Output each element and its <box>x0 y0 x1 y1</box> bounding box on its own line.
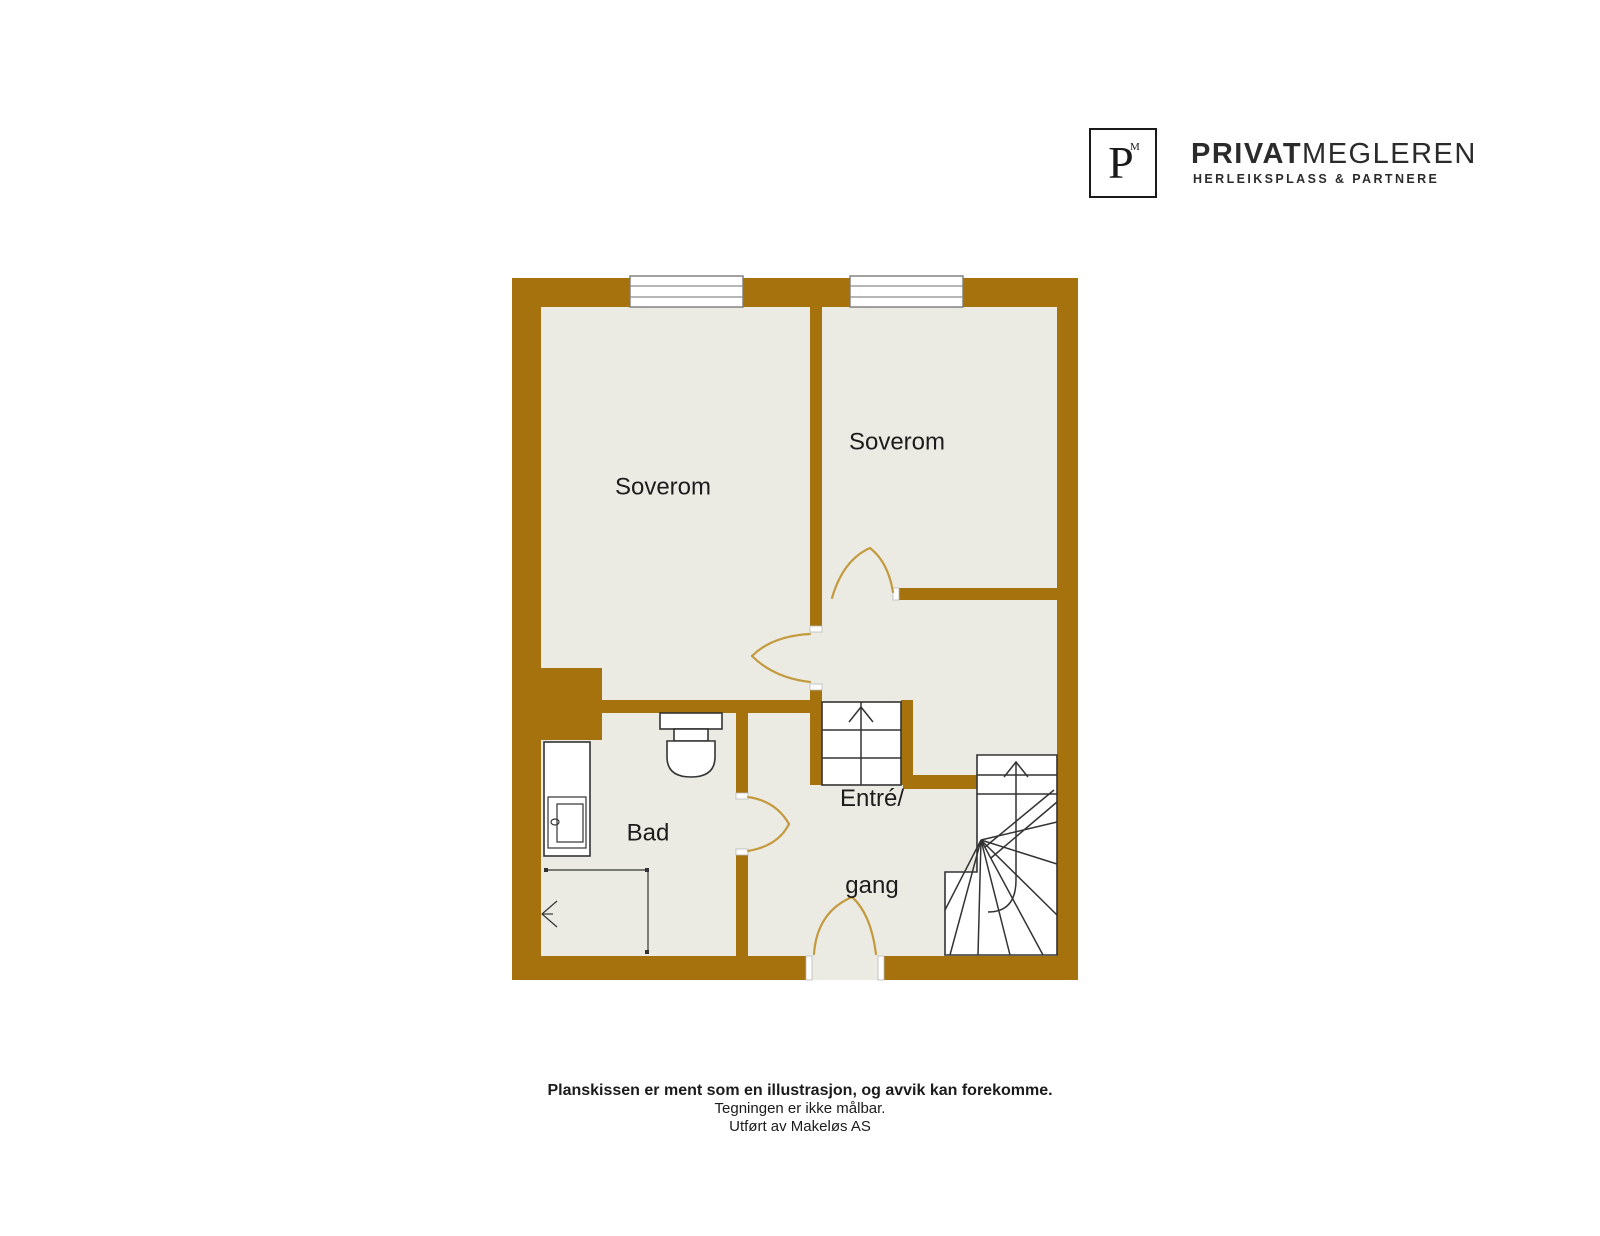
footer-line-1: Planskissen er ment som en illustrasjon,… <box>0 1081 1600 1100</box>
brand-name: PRIVATMEGLEREN <box>1191 139 1477 169</box>
room-label-entre-line1: Entré/ <box>840 784 904 813</box>
room-label-soverom-2: Soverom <box>849 428 945 457</box>
brand-subtitle: HERLEIKSPLASS & PARTNERE <box>1193 172 1439 186</box>
wall-bad-top <box>602 700 810 713</box>
entrance-opening <box>806 956 884 980</box>
brand-name-bold: PRIVAT <box>1191 138 1302 170</box>
toilet-icon <box>660 713 722 777</box>
footer-disclaimer: Planskissen er ment som en illustrasjon,… <box>0 1081 1600 1136</box>
page: Soverom Soverom Bad Entré/ gang P M PRIV… <box>0 0 1600 1236</box>
wall-soverom2-bottom <box>893 588 1057 600</box>
logo-monogram-sup: M <box>1130 141 1140 153</box>
privatmegleren-logo-icon: P M <box>1089 128 1157 198</box>
wall-chimney-bump <box>541 668 602 740</box>
brand-name-light: MEGLEREN <box>1302 138 1477 170</box>
sink-cabinet-icon <box>544 742 590 856</box>
room-label-entre-gang: Entré/ gang <box>840 726 904 958</box>
wall-bedroom-divider-lower <box>810 690 822 785</box>
room-label-bad: Bad <box>627 819 670 848</box>
wall-bedroom-divider-upper <box>810 307 822 626</box>
window-icon <box>850 276 963 307</box>
room-label-soverom-1: Soverom <box>615 473 711 502</box>
window-icon <box>630 276 743 307</box>
wall-bad-right-lower <box>736 855 748 956</box>
footer-line-2: Tegningen er ikke målbar. <box>0 1100 1600 1118</box>
wall-bad-right-upper <box>736 713 748 793</box>
room-label-entre-line2: gang <box>840 871 904 900</box>
wall-entre-stair <box>903 775 977 789</box>
footer-line-3: Utført av Makeløs AS <box>0 1118 1600 1136</box>
